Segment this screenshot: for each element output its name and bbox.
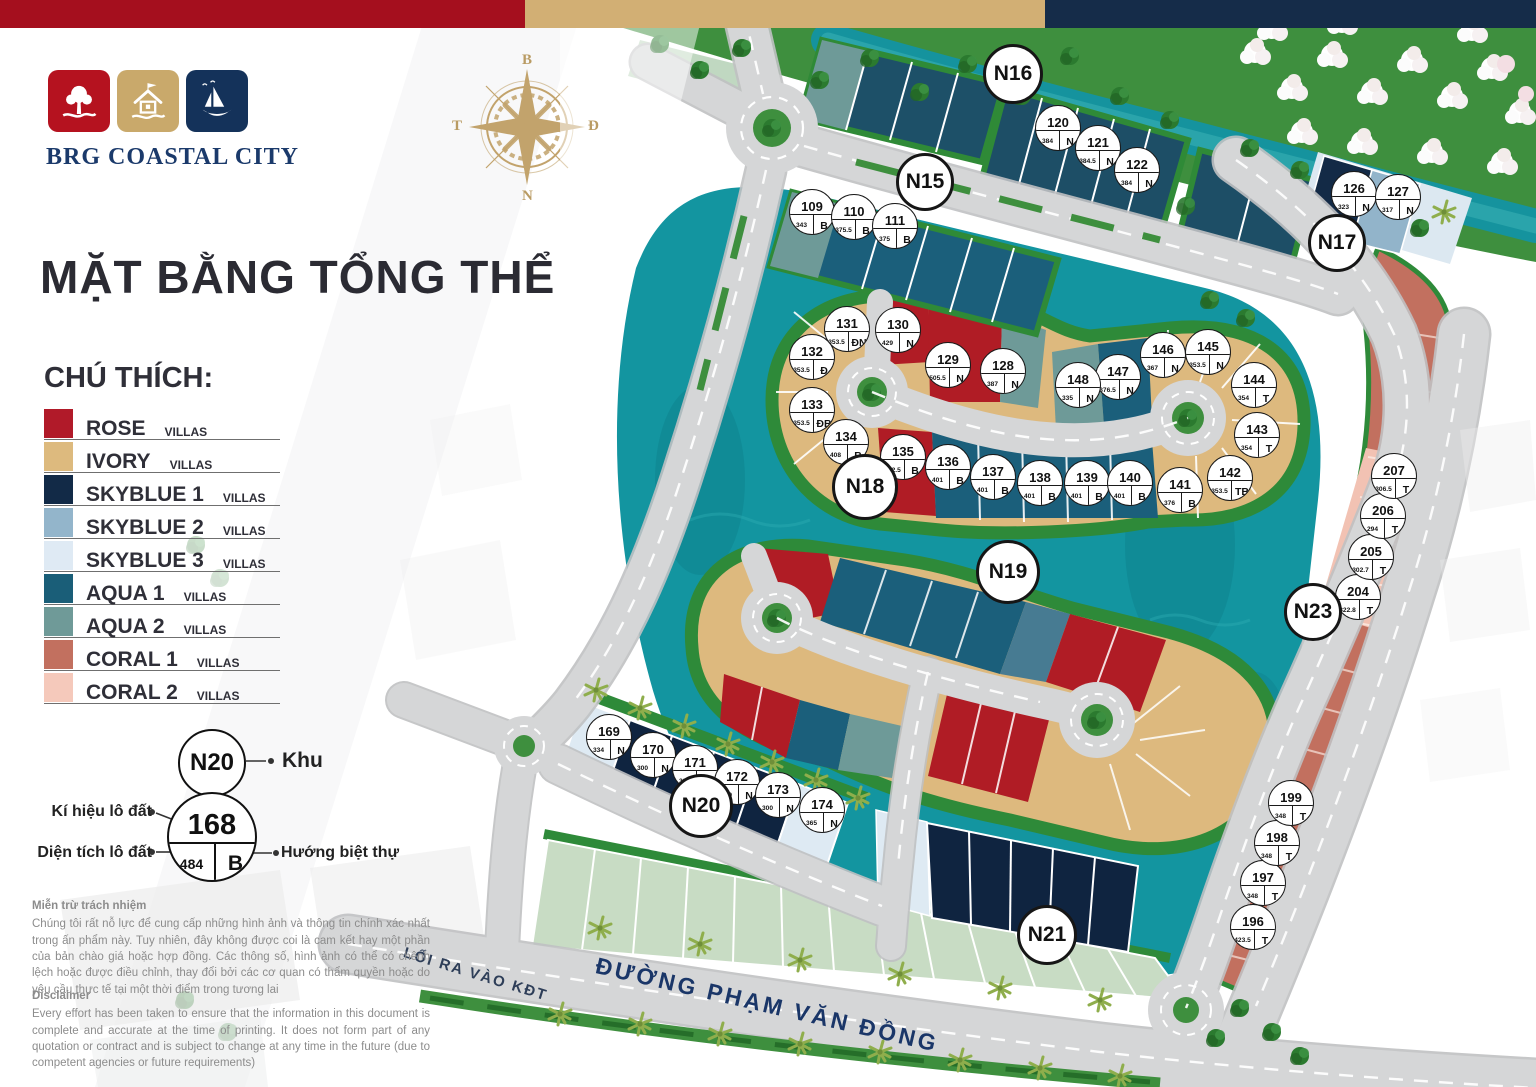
lot-circle-148: 148335N bbox=[1055, 362, 1101, 408]
compass-north-label: B bbox=[522, 52, 532, 69]
legend-item-suffix: VILLAS bbox=[165, 425, 208, 439]
legend-swatch bbox=[44, 409, 73, 438]
lot-circle-109: 109343B bbox=[789, 189, 835, 235]
tree-icon bbox=[48, 70, 110, 132]
legend-item: SKYBLUE 3VILLAS bbox=[44, 539, 280, 572]
legend-item-suffix: VILLAS bbox=[197, 656, 240, 670]
top-accent-bar bbox=[0, 0, 1536, 28]
legend-item: CORAL 2VILLAS bbox=[44, 671, 280, 704]
lot-circle-173: 173300N bbox=[755, 772, 801, 818]
legend-item: CORAL 1VILLAS bbox=[44, 638, 280, 671]
legend-heading: CHÚ THÍCH: bbox=[44, 362, 280, 395]
key-lot-circle: 168 484 B bbox=[167, 792, 257, 882]
lot-circle-199: 199348T bbox=[1268, 780, 1314, 826]
zone-circle-n20: N20 bbox=[669, 774, 733, 838]
legend-item-name: AQUA 1 bbox=[86, 583, 165, 604]
legend-swatch bbox=[44, 442, 73, 471]
lot-circle-196: 196423.5T bbox=[1230, 904, 1276, 950]
legend-item-name: CORAL 2 bbox=[86, 682, 178, 703]
legend-swatch bbox=[44, 673, 73, 702]
key-zone-label: Khu bbox=[282, 749, 323, 773]
legend-list: ROSEVILLASIVORYVILLASSKYBLUE 1VILLASSKYB… bbox=[44, 407, 280, 704]
disclaimer-en-heading: Disclaimer bbox=[32, 988, 430, 1004]
legend-item: SKYBLUE 1VILLAS bbox=[44, 473, 280, 506]
compass-south-label: N bbox=[522, 188, 533, 205]
legend-item-suffix: VILLAS bbox=[223, 524, 266, 538]
legend-item: AQUA 2VILLAS bbox=[44, 605, 280, 638]
lot-circle-140: 140401B bbox=[1107, 460, 1153, 506]
legend-swatch bbox=[44, 541, 73, 570]
compass-west-label: T bbox=[452, 118, 462, 135]
legend-item-name: CORAL 1 bbox=[86, 649, 178, 670]
zone-circle-n16: N16 bbox=[983, 44, 1043, 104]
lot-circle-174: 174365N bbox=[799, 787, 845, 833]
lot-circle-207: 207306.5T bbox=[1371, 453, 1417, 499]
disclaimer-en: Disclaimer Every effort has been taken t… bbox=[32, 988, 430, 1072]
zone-circle-n18: N18 bbox=[832, 454, 898, 520]
top-bar-navy bbox=[1045, 0, 1536, 28]
lot-circle-205: 205302.7T bbox=[1348, 534, 1394, 580]
lot-circle-138: 138401B bbox=[1017, 460, 1063, 506]
sailboat-icon bbox=[186, 70, 248, 132]
legend-swatch bbox=[44, 607, 73, 636]
key-lot-area-label: Diện tích lô đất bbox=[12, 844, 152, 862]
legend-item-suffix: VILLAS bbox=[184, 623, 227, 637]
page-title: MẶT BẰNG TỔNG THỂ bbox=[40, 250, 555, 304]
legend-item-suffix: VILLAS bbox=[170, 458, 213, 472]
lot-circle-206: 206294T bbox=[1360, 493, 1406, 539]
zone-circle-n21: N21 bbox=[1017, 905, 1077, 965]
lot-circle-126: 126323N bbox=[1331, 171, 1377, 217]
legend-item: AQUA 1VILLAS bbox=[44, 572, 280, 605]
legend-item-name: SKYBLUE 2 bbox=[86, 517, 204, 538]
key-lot-number-label: Kí hiệu lô đất bbox=[12, 803, 152, 821]
legend-item-name: SKYBLUE 1 bbox=[86, 484, 204, 505]
legend-swatch bbox=[44, 475, 73, 504]
lot-circle-198: 198348T bbox=[1254, 820, 1300, 866]
lot-circle-147: 147376.5N bbox=[1095, 354, 1141, 400]
zone-circle-n17: N17 bbox=[1308, 214, 1366, 272]
lot-circle-169: 169334N bbox=[586, 714, 632, 760]
lot-circle-127: 127317N bbox=[1375, 174, 1421, 220]
lot-circle-136: 136401B bbox=[925, 444, 971, 490]
brand-logo bbox=[48, 70, 248, 132]
zone-circle-n15: N15 bbox=[896, 153, 954, 211]
legend-item: SKYBLUE 2VILLAS bbox=[44, 506, 280, 539]
lot-circle-132: 132353.5Đ bbox=[789, 334, 835, 380]
zone-circle-n23: N23 bbox=[1284, 583, 1342, 641]
legend-item: ROSEVILLAS bbox=[44, 407, 280, 440]
house-icon bbox=[117, 70, 179, 132]
key-zone-example: N20 bbox=[190, 749, 234, 777]
lot-circle-170: 170300N bbox=[630, 732, 676, 778]
lot-circle-129: 129505.5N bbox=[925, 342, 971, 388]
disclaimer-en-body: Every effort has been taken to ensure th… bbox=[32, 1008, 430, 1069]
lot-circle-143: 143354T bbox=[1234, 412, 1280, 458]
lot-circle-145: 145353.5N bbox=[1185, 329, 1231, 375]
legend: CHÚ THÍCH: ROSEVILLASIVORYVILLASSKYBLUE … bbox=[44, 362, 280, 704]
legend-swatch bbox=[44, 640, 73, 669]
lot-circle-130: 130429N bbox=[875, 307, 921, 353]
top-bar-red bbox=[0, 0, 525, 28]
lot-circle-120: 120384N bbox=[1035, 105, 1081, 151]
legend-item-suffix: VILLAS bbox=[197, 689, 240, 703]
lot-circle-122: 122384N bbox=[1114, 147, 1160, 193]
lot-circle-139: 139401B bbox=[1064, 460, 1110, 506]
legend-item-name: IVORY bbox=[86, 451, 151, 472]
legend-item: IVORYVILLAS bbox=[44, 440, 280, 473]
brand-name: BRG COASTAL CITY bbox=[46, 144, 299, 171]
compass-east-label: Đ bbox=[588, 118, 599, 135]
legend-swatch bbox=[44, 508, 73, 537]
lot-circle-197: 197348T bbox=[1240, 860, 1286, 906]
lot-circle-110: 110375.5B bbox=[831, 194, 877, 240]
lot-circle-128: 128387N bbox=[980, 348, 1026, 394]
lot-circle-111: 111375B bbox=[872, 203, 918, 249]
disclaimer-vi-body: Chúng tôi rất nỗ lực để cung cấp những h… bbox=[32, 918, 430, 995]
key-lot-direction-label: Hướng biệt thự bbox=[281, 844, 399, 862]
legend-item-name: SKYBLUE 3 bbox=[86, 550, 204, 571]
legend-item-suffix: VILLAS bbox=[223, 557, 266, 571]
lot-circle-137: 137401B bbox=[970, 454, 1016, 500]
disclaimer-vi-heading: Miễn trừ trách nhiệm bbox=[32, 898, 430, 914]
masterplan-poster: BRG COASTAL CITY B Đ N T MẶT BẰNG TỔNG T… bbox=[0, 0, 1536, 1087]
lot-circle-146: 146367N bbox=[1140, 332, 1186, 378]
legend-item-name: ROSE bbox=[86, 418, 146, 439]
lot-circle-141: 141376B bbox=[1157, 467, 1203, 513]
legend-item-suffix: VILLAS bbox=[184, 590, 227, 604]
lot-circle-144: 144354T bbox=[1231, 362, 1277, 408]
disclaimer-vi: Miễn trừ trách nhiệm Chúng tôi rất nỗ lự… bbox=[32, 898, 430, 998]
lot-circle-142: 142353.5TB bbox=[1207, 455, 1253, 501]
top-bar-gold bbox=[525, 0, 1045, 28]
legend-swatch bbox=[44, 574, 73, 603]
legend-item-suffix: VILLAS bbox=[223, 491, 266, 505]
key-zone-circle: N20 bbox=[178, 729, 246, 797]
zone-circle-n19: N19 bbox=[976, 540, 1040, 604]
legend-item-name: AQUA 2 bbox=[86, 616, 165, 637]
